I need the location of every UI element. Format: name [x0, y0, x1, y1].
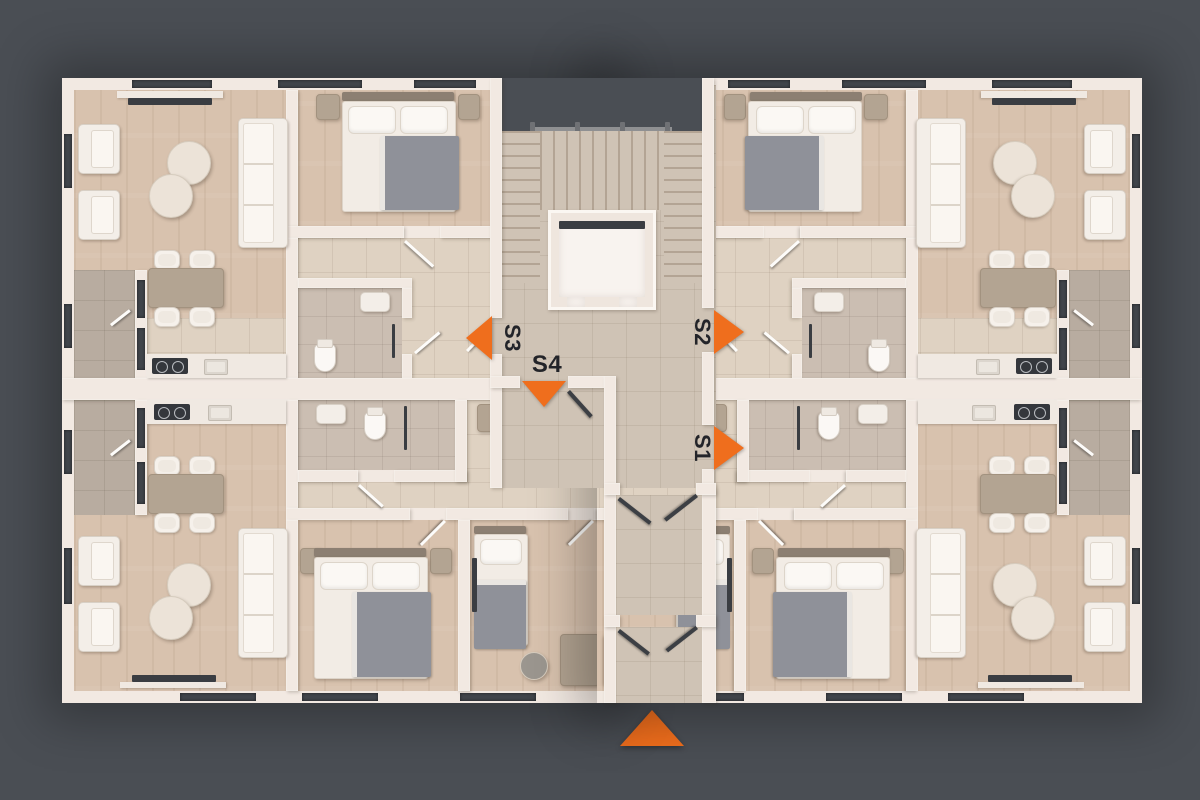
entrance-arrow-icon: [714, 310, 744, 354]
unit-label-s2: S2: [691, 310, 713, 354]
entrance-arrow-icon: [714, 426, 744, 470]
unit-label-s4: S4: [524, 354, 570, 378]
entrance-arrow-icon: [522, 381, 566, 407]
unit-markers: S3 S2 S1 S4: [62, 78, 1142, 703]
unit-marker-s2[interactable]: S2: [680, 304, 750, 364]
unit-label-s1: S1: [691, 426, 713, 470]
north-arrow-icon: [620, 710, 684, 746]
unit-marker-s4[interactable]: S4: [520, 352, 572, 408]
unit-marker-s3[interactable]: S3: [460, 308, 524, 368]
floor-plan-canvas: S3 S2 S1 S4: [0, 0, 1200, 800]
entrance-arrow-icon: [466, 316, 492, 360]
unit-marker-s1[interactable]: S1: [680, 420, 750, 480]
building: S3 S2 S1 S4: [62, 78, 1142, 703]
